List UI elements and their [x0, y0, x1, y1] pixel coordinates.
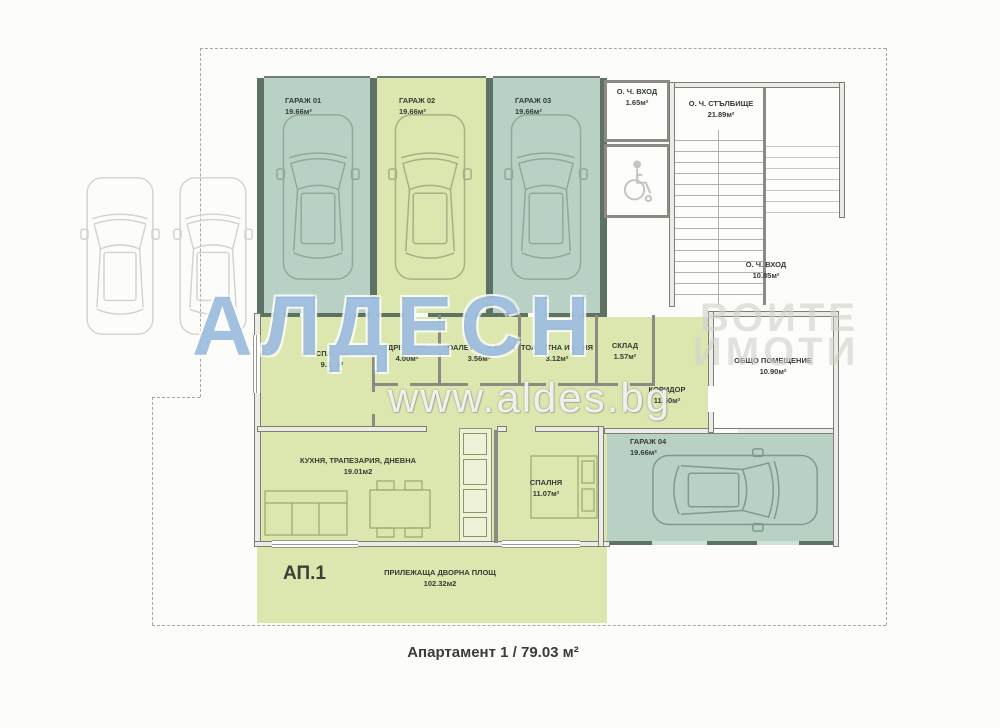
kitchen-appliance: [463, 517, 487, 537]
wall-segment: [839, 82, 845, 218]
kitchen-stove: [463, 489, 487, 513]
room-label-bedroom-2: СПАЛНЯ 11.07м²: [530, 478, 562, 500]
garage-01-car: [276, 106, 360, 288]
room-area: 11.07м²: [530, 489, 562, 500]
garage-door-line: [377, 76, 486, 78]
garage-04-car: [645, 448, 825, 532]
garage-03-car: [504, 106, 588, 288]
wall-segment: [494, 430, 498, 543]
room-name: О. Ч. СТЪЛБИЩЕ: [689, 99, 753, 110]
boundary-line-jog: [152, 397, 200, 398]
garage-door-line: [493, 76, 600, 78]
garage-door-line: [264, 76, 370, 78]
kitchen-appliance: [463, 433, 487, 455]
wall-segment: [598, 426, 604, 547]
room-area: 102.32м2: [384, 579, 496, 590]
watermark-right-line2: ИМОТИ: [693, 330, 859, 375]
room-area: 19.66м²: [515, 107, 551, 118]
room-label-entry-main: О. Ч. ВХОД 10.85м²: [746, 260, 786, 282]
wall-opening: [652, 541, 707, 545]
door-opening: [372, 392, 375, 414]
room-label-yard: ПРИЛЕЖАЩА ДВОРНА ПЛОЩ 102.32м2: [384, 568, 496, 590]
room-area: 19.66м²: [285, 107, 321, 118]
room-name: ГАРАЖ 03: [515, 96, 551, 107]
door-opening: [708, 386, 714, 412]
room-label-living: КУХНЯ, ТРАПЕЗАРИЯ, ДНЕВНА 19.01м2: [300, 456, 416, 478]
room-name: СПАЛНЯ: [530, 478, 562, 489]
boundary-line-bottom: [152, 625, 886, 626]
room-label-garage-01: ГАРАЖ 01 19.66м²: [285, 96, 321, 118]
room-area: 19.01м2: [300, 467, 416, 478]
kitchen-sink: [463, 459, 487, 485]
boundary-line-left-lower: [152, 397, 153, 625]
room-name: КУХНЯ, ТРАПЕЗАРИЯ, ДНЕВНА: [300, 456, 416, 467]
sofa: [264, 490, 348, 538]
room-name: О. Ч. ВХОД: [746, 260, 786, 271]
wall-segment: [607, 541, 838, 545]
floor-plan-canvas: ГАРАЖ 01 19.66м² ГАРАЖ 02 19.66м² ГАРАЖ …: [0, 0, 1000, 728]
wall-segment: [497, 426, 507, 432]
room-label-garage-02: ГАРАЖ 02 19.66м²: [399, 96, 435, 118]
room-name: ГАРАЖ 01: [285, 96, 321, 107]
boundary-line-top: [200, 48, 886, 49]
plan-caption: Апартамент 1 / 79.03 м²: [407, 644, 579, 661]
room-name: ГАРАЖ 02: [399, 96, 435, 107]
stair-treads: [766, 136, 839, 218]
wall-segment: [669, 82, 675, 307]
parked-car: [80, 168, 160, 344]
room-label-garage-03: ГАРАЖ 03 19.66м²: [515, 96, 551, 118]
room-area: 19.66м²: [630, 448, 666, 459]
watermark-brand: АЛДЕСН: [192, 280, 698, 376]
room-name: ГАРАЖ 04: [630, 437, 666, 448]
garage-02-car: [388, 106, 472, 288]
wall-segment: [669, 82, 845, 88]
wall-opening: [757, 541, 799, 545]
watermark-url: www.aldes.bg: [388, 374, 671, 422]
window: [502, 540, 580, 548]
apartment-tag: АП.1: [283, 563, 326, 585]
door-opening: [714, 429, 738, 433]
stair-stringer: [718, 130, 719, 305]
kitchen-counter: [459, 428, 492, 542]
room-area: 10.85м²: [746, 271, 786, 282]
boundary-line-right: [886, 48, 887, 625]
window: [272, 540, 358, 548]
room-label-garage-04: ГАРАЖ 04 19.66м²: [630, 437, 666, 459]
watermark-brand-partial: Н: [529, 280, 598, 373]
room-name: О. Ч. ВХОД: [617, 87, 657, 98]
room-area: 1.65м²: [617, 98, 657, 109]
room-area: 19.66м²: [399, 107, 435, 118]
wall-segment: [257, 426, 427, 432]
wall-segment: [535, 426, 601, 432]
room-area: 21.89м²: [689, 110, 753, 121]
room-label-entry-small: О. Ч. ВХОД 1.65м²: [617, 87, 657, 109]
room-name: ПРИЛЕЖАЩА ДВОРНА ПЛОЩ: [384, 568, 496, 579]
room-label-stairwell: О. Ч. СТЪЛБИЩЕ 21.89м²: [689, 99, 753, 121]
dining-table: [362, 480, 438, 538]
watermark-brand-text: АЛДЕС: [192, 280, 529, 373]
wheelchair-icon: [617, 155, 659, 207]
